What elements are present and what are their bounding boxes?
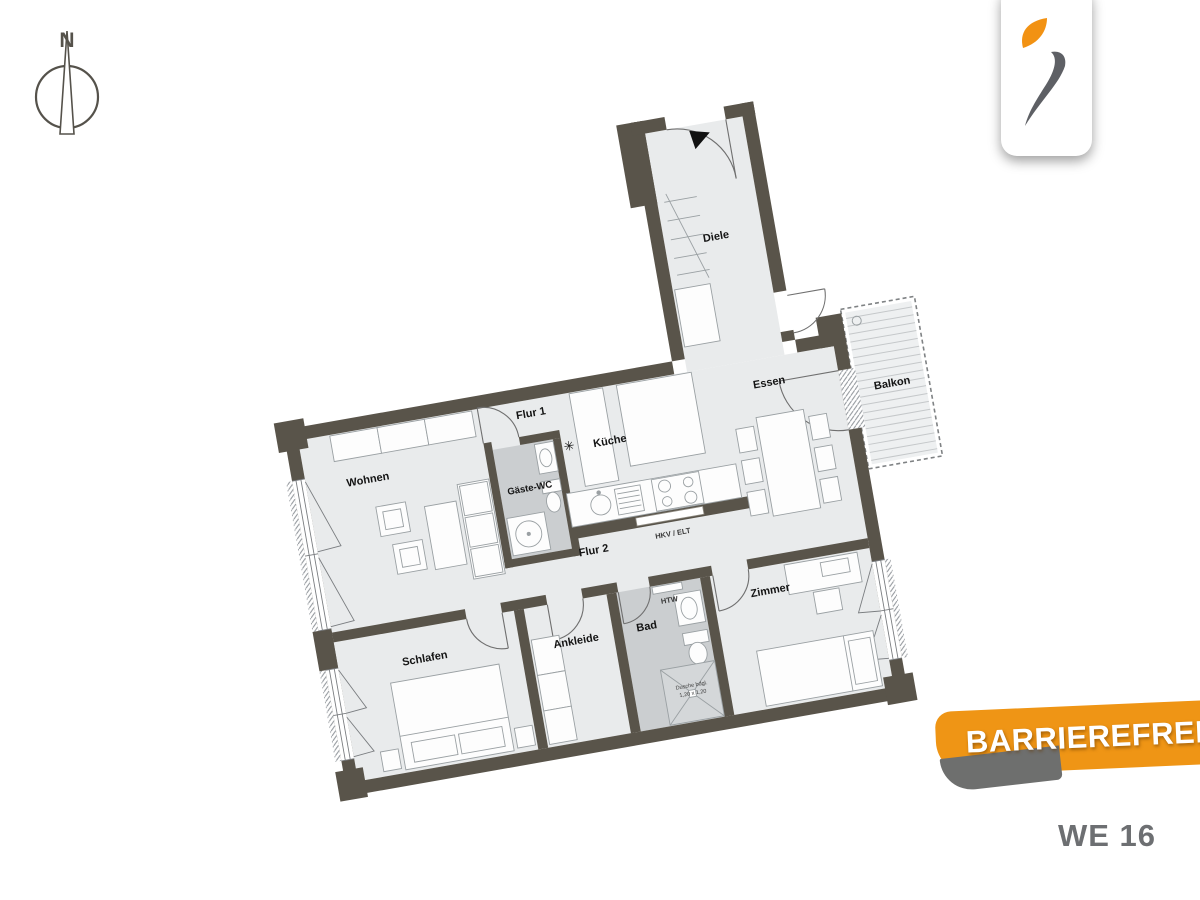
banner-label: BARRIEREFREI (935, 699, 1200, 776)
logo-swoosh-icon (1025, 52, 1065, 126)
unit-label: WE 16 (1058, 818, 1156, 854)
compass-icon: N (36, 29, 98, 134)
floor-plan: Wohnen Flur 1 Gäste-WC Küche Essen Balko… (233, 80, 983, 802)
barrierefrei-banner: BARRIEREFREI (935, 699, 1200, 776)
logo-card (1001, 0, 1092, 156)
logo-flame-icon (1022, 18, 1047, 48)
logo-icon (1001, 0, 1092, 156)
floorplan-page: N (0, 0, 1200, 900)
